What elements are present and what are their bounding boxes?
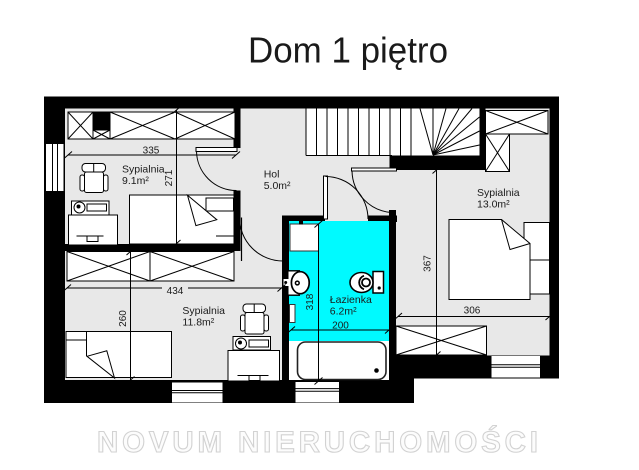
svg-text:NOVUM NIERUCHOMOŚCI: NOVUM NIERUCHOMOŚCI [97, 425, 542, 459]
svg-text:367: 367 [423, 255, 434, 272]
svg-text:6.2m²: 6.2m² [330, 305, 357, 317]
svg-text:318: 318 [305, 293, 316, 310]
svg-text:306: 306 [464, 306, 481, 317]
svg-text:260: 260 [118, 310, 129, 327]
svg-text:271: 271 [164, 169, 175, 186]
svg-text:13.0m²: 13.0m² [477, 199, 510, 211]
svg-text:Dom 1 piętro: Dom 1 piętro [248, 30, 448, 71]
svg-text:5.0m²: 5.0m² [264, 180, 291, 192]
svg-text:Sypialnia: Sypialnia [477, 187, 520, 199]
svg-text:434: 434 [167, 286, 184, 297]
svg-text:11.8m²: 11.8m² [182, 317, 214, 329]
svg-text:Sypialnia: Sypialnia [122, 164, 165, 176]
svg-text:9.1m²: 9.1m² [122, 175, 149, 187]
svg-text:Łazienka: Łazienka [330, 294, 372, 306]
svg-text:335: 335 [143, 146, 160, 157]
svg-text:200: 200 [332, 321, 349, 332]
svg-text:Sypialnia: Sypialnia [182, 305, 225, 317]
svg-text:Hol: Hol [264, 169, 280, 181]
